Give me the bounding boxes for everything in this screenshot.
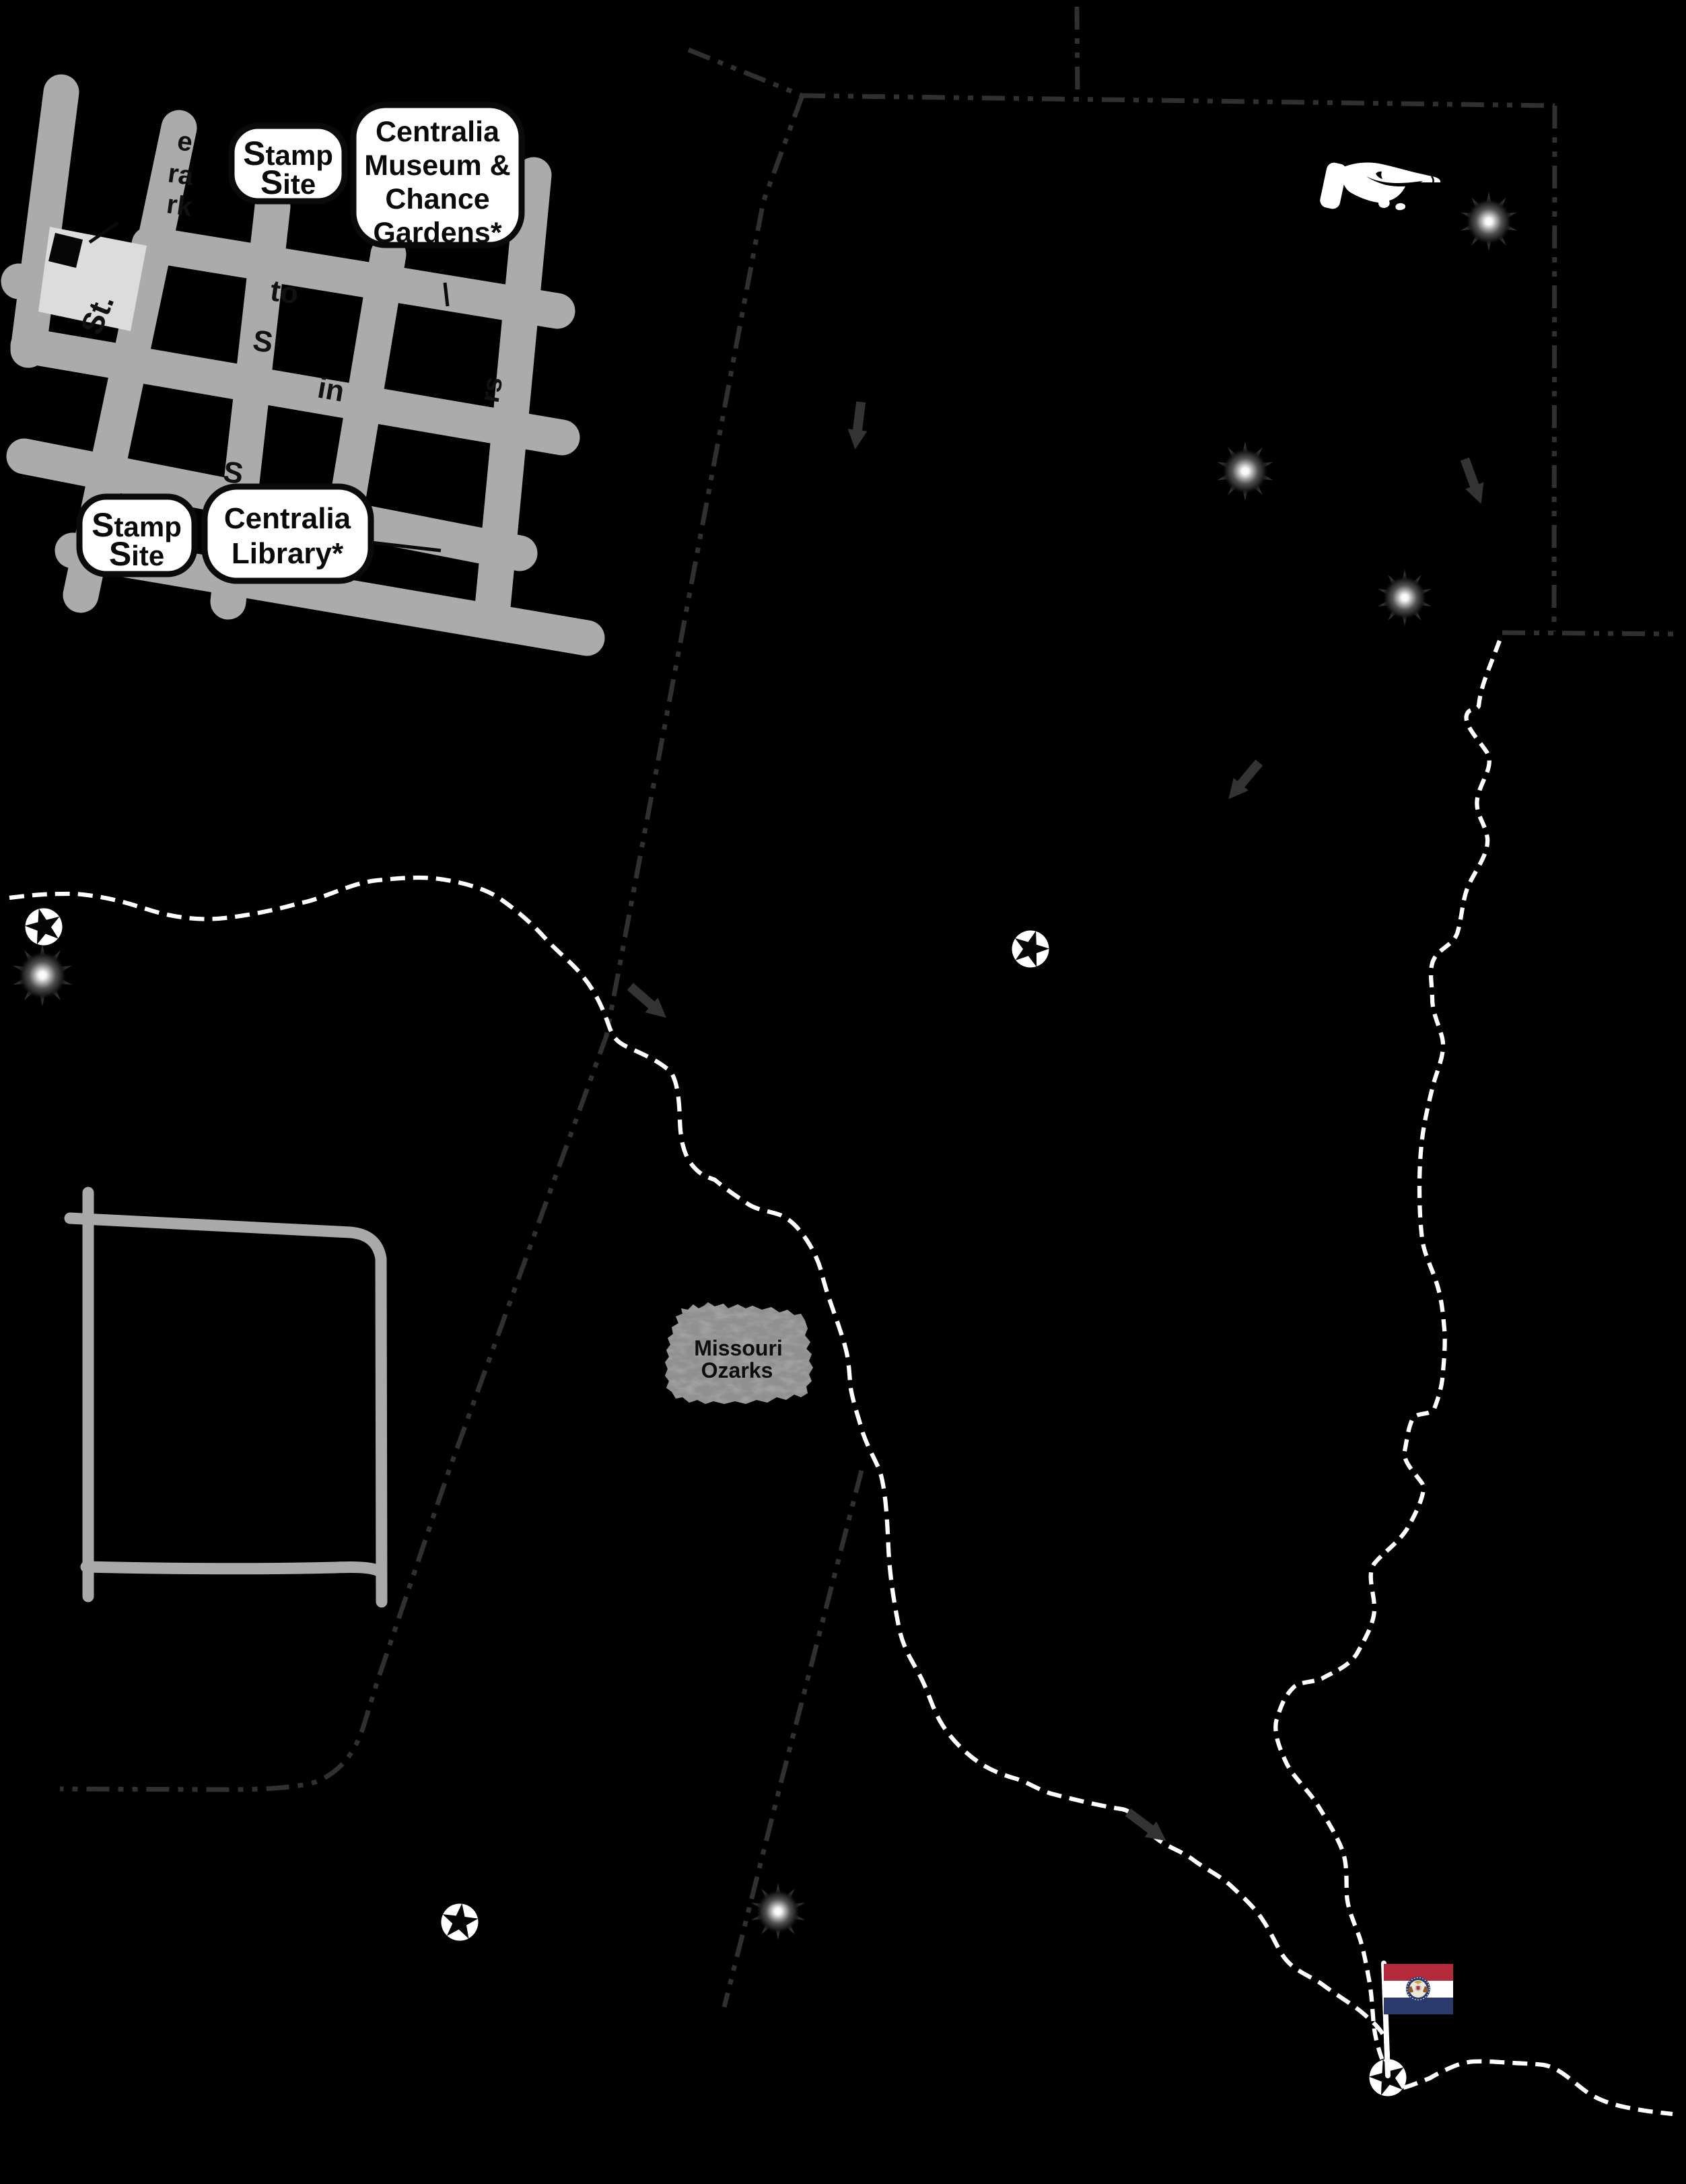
svg-text:Stamp: Stamp (243, 135, 333, 172)
svg-text:Chance: Chance (385, 183, 489, 215)
svg-text:Museum &: Museum & (364, 149, 510, 182)
svg-text:rs: rs (475, 375, 509, 405)
svg-text:Ozarks: Ozarks (701, 1358, 773, 1382)
svg-text:Gardens*: Gardens* (373, 217, 501, 249)
svg-text:Library*: Library* (232, 537, 344, 570)
svg-text:ra: ra (166, 158, 196, 191)
svg-text:Centralia: Centralia (376, 116, 500, 148)
svg-text:in: in (315, 372, 347, 409)
svg-text:to: to (269, 274, 301, 310)
svg-text:Stamp: Stamp (92, 506, 182, 544)
svg-text:Centralia: Centralia (224, 502, 351, 535)
svg-text:Missouri: Missouri (694, 1336, 783, 1360)
svg-text:rk: rk (165, 189, 195, 222)
svg-text:Site: Site (260, 164, 316, 201)
svg-text:Site: Site (109, 535, 164, 573)
